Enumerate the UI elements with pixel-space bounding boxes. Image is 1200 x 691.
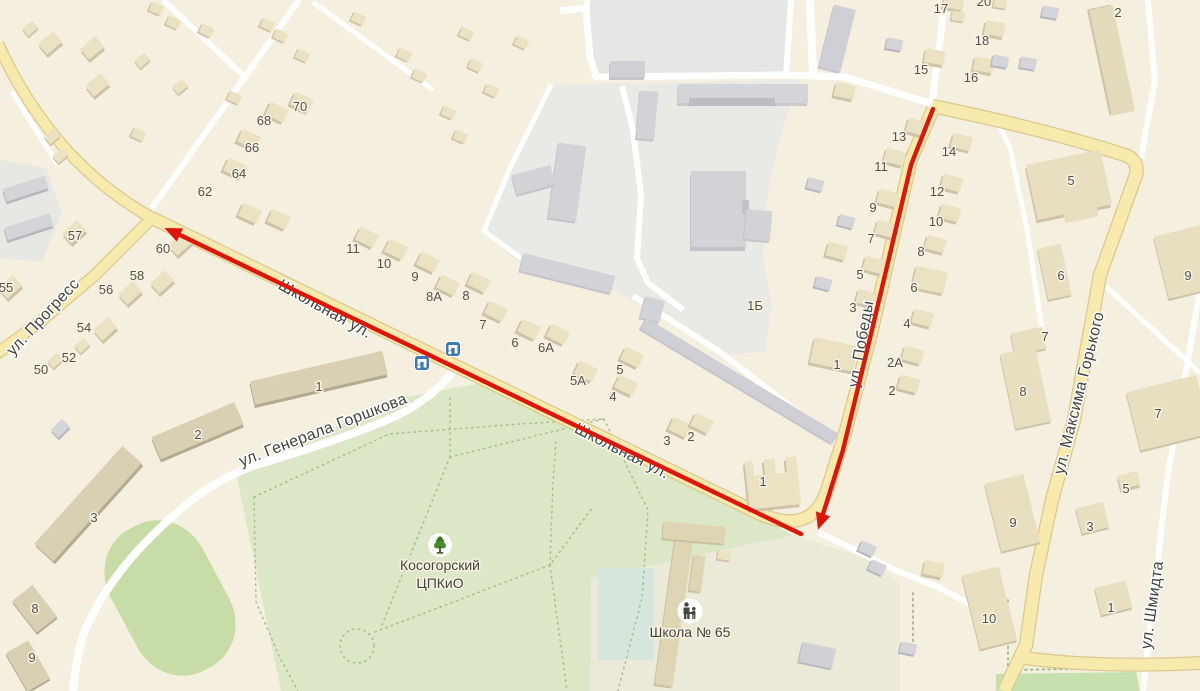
svg-text:8: 8 [31, 601, 38, 616]
svg-text:7: 7 [479, 317, 486, 332]
svg-text:54: 54 [77, 320, 91, 335]
svg-text:7: 7 [1154, 406, 1161, 421]
svg-text:8: 8 [1019, 384, 1026, 399]
svg-text:9: 9 [411, 269, 418, 284]
svg-text:Косогорский: Косогорский [400, 557, 480, 573]
svg-text:5: 5 [856, 267, 863, 282]
svg-text:16: 16 [964, 70, 978, 85]
svg-text:3: 3 [90, 510, 97, 525]
svg-text:70: 70 [293, 99, 307, 114]
svg-text:1: 1 [315, 379, 322, 394]
svg-text:3: 3 [1086, 519, 1093, 534]
svg-text:9: 9 [869, 200, 876, 215]
svg-text:6А: 6А [538, 340, 554, 355]
svg-text:9: 9 [1009, 515, 1016, 530]
svg-text:68: 68 [257, 113, 271, 128]
svg-text:4: 4 [903, 316, 910, 331]
svg-text:7: 7 [1041, 329, 1048, 344]
svg-text:17: 17 [934, 1, 948, 16]
svg-text:12: 12 [930, 184, 944, 199]
svg-text:56: 56 [99, 282, 113, 297]
svg-text:58: 58 [130, 268, 144, 283]
svg-text:2: 2 [888, 383, 895, 398]
svg-text:10: 10 [929, 214, 943, 229]
svg-text:60: 60 [156, 241, 170, 256]
svg-text:8А: 8А [426, 289, 442, 304]
svg-text:14: 14 [942, 144, 956, 159]
svg-text:4: 4 [609, 389, 616, 404]
svg-text:15: 15 [914, 62, 928, 77]
svg-text:8: 8 [917, 244, 924, 259]
svg-text:5А: 5А [570, 373, 586, 388]
svg-text:6: 6 [910, 280, 917, 295]
svg-text:2: 2 [687, 429, 694, 444]
svg-text:3: 3 [663, 433, 670, 448]
svg-text:9: 9 [28, 650, 35, 665]
svg-text:2А: 2А [887, 355, 903, 370]
svg-text:9: 9 [1184, 268, 1191, 283]
svg-text:62: 62 [198, 184, 212, 199]
svg-text:ЦПКиО: ЦПКиО [416, 575, 463, 591]
svg-text:1: 1 [1107, 600, 1114, 615]
svg-text:13: 13 [892, 129, 906, 144]
svg-text:57: 57 [68, 228, 82, 243]
svg-text:18: 18 [975, 33, 989, 48]
svg-text:1Б: 1Б [747, 298, 763, 313]
svg-text:11: 11 [346, 241, 360, 256]
svg-text:11: 11 [874, 159, 888, 174]
svg-text:1: 1 [833, 357, 840, 372]
svg-text:55: 55 [0, 280, 13, 295]
svg-text:6: 6 [511, 335, 518, 350]
svg-text:50: 50 [34, 362, 48, 377]
svg-text:5: 5 [1067, 173, 1074, 188]
svg-text:20: 20 [977, 0, 991, 9]
svg-text:Школа № 65: Школа № 65 [650, 624, 731, 640]
svg-text:64: 64 [232, 166, 246, 181]
svg-text:1: 1 [759, 474, 766, 489]
svg-text:5: 5 [616, 362, 623, 377]
svg-text:7: 7 [867, 231, 874, 246]
svg-text:8: 8 [462, 288, 469, 303]
svg-text:66: 66 [245, 140, 259, 155]
svg-text:3: 3 [849, 300, 856, 315]
svg-text:6: 6 [1057, 268, 1064, 283]
svg-text:5: 5 [1122, 481, 1129, 496]
svg-text:10: 10 [982, 611, 996, 626]
svg-text:10: 10 [377, 256, 391, 271]
svg-text:2: 2 [194, 427, 201, 442]
svg-text:2: 2 [1114, 5, 1121, 20]
svg-text:52: 52 [62, 350, 76, 365]
